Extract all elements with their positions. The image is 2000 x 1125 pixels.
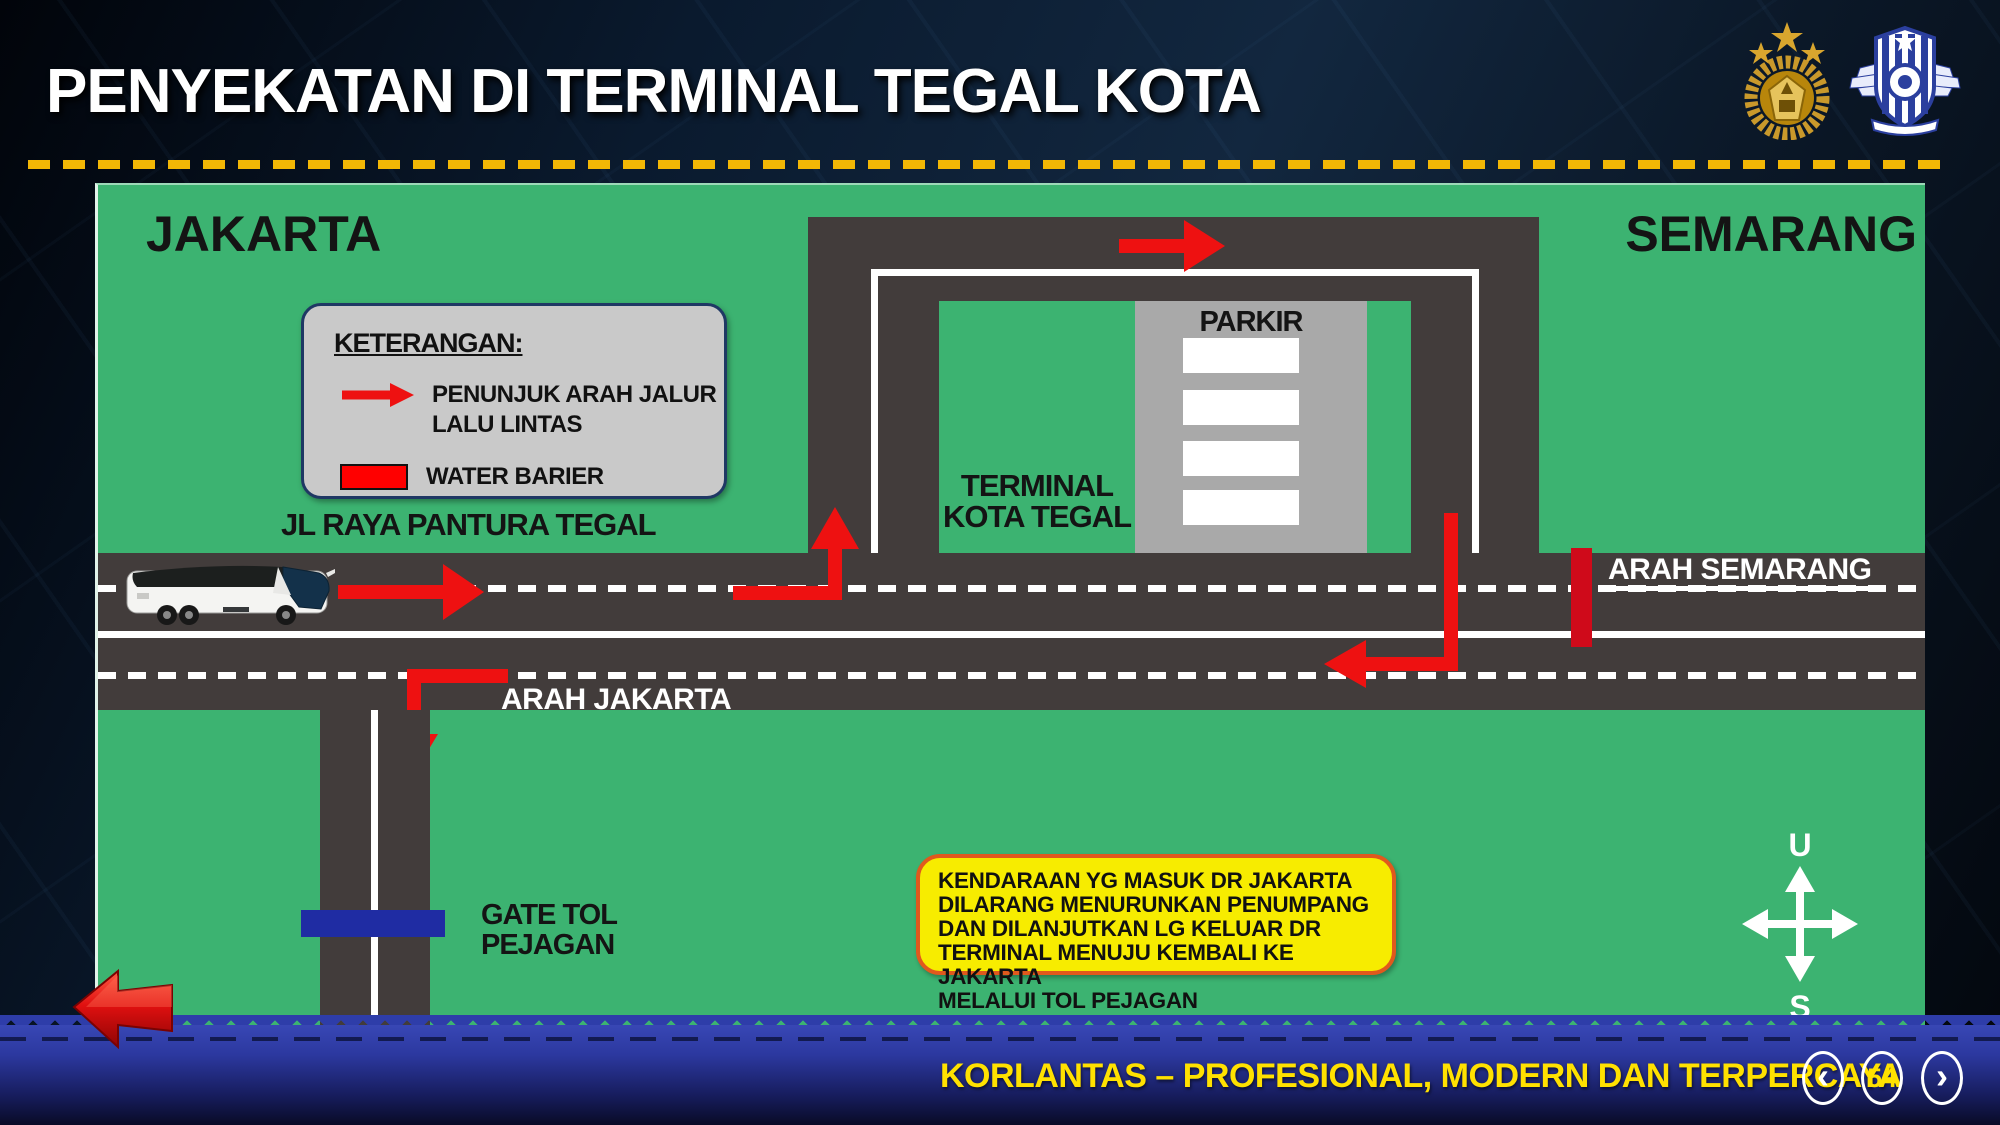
toll-road-center-line (371, 710, 378, 1027)
compass-cross-icon (1740, 864, 1860, 984)
rule-note-text: KENDARAAN YG MASUK DR JAKARTA DILARANG M… (938, 869, 1374, 1013)
page-number-badge: 54 (1861, 1051, 1903, 1105)
title-divider-dashed-line (28, 160, 1950, 169)
compass-north-label: U (1740, 827, 1860, 864)
red-3d-arrow-left (72, 965, 174, 1060)
compass-rose: U S (1740, 827, 1860, 1017)
slide: PENYEKATAN DI TERMINAL TEGAL KOTA (0, 0, 2000, 1125)
prev-slide-button[interactable]: ‹ (1802, 1051, 1844, 1105)
page-title: PENYEKATAN DI TERMINAL TEGAL KOTA (46, 56, 1261, 127)
toll-gate-bar (301, 910, 445, 937)
toll-gate-label: GATE TOL PEJAGAN (481, 900, 617, 961)
next-slide-button[interactable]: › (1921, 1051, 1963, 1105)
rule-note-box: KENDARAAN YG MASUK DR JAKARTA DILARANG M… (916, 854, 1396, 975)
footer-tagline: KORLANTAS – PROFESIONAL, MODERN DAN TERP… (940, 1057, 1902, 1096)
polri-gold-emblem-logo (1735, 20, 1839, 140)
water-barrier (1571, 548, 1592, 647)
footer-stitch-line (0, 1037, 2000, 1041)
footer-zigzag-edge (0, 1015, 2000, 1025)
korlantas-shield-logo (1842, 20, 1968, 138)
chevron-right-icon: › (1936, 1058, 1948, 1094)
footer-bar: KORLANTAS – PROFESIONAL, MODERN DAN TERP… (0, 1025, 2000, 1125)
page-number: 54 (1867, 1063, 1897, 1094)
traffic-diagram-map: JAKARTA SEMARANG KETERANGAN: PENUNJUK AR… (95, 183, 1925, 1027)
chevron-left-icon: ‹ (1817, 1058, 1829, 1094)
